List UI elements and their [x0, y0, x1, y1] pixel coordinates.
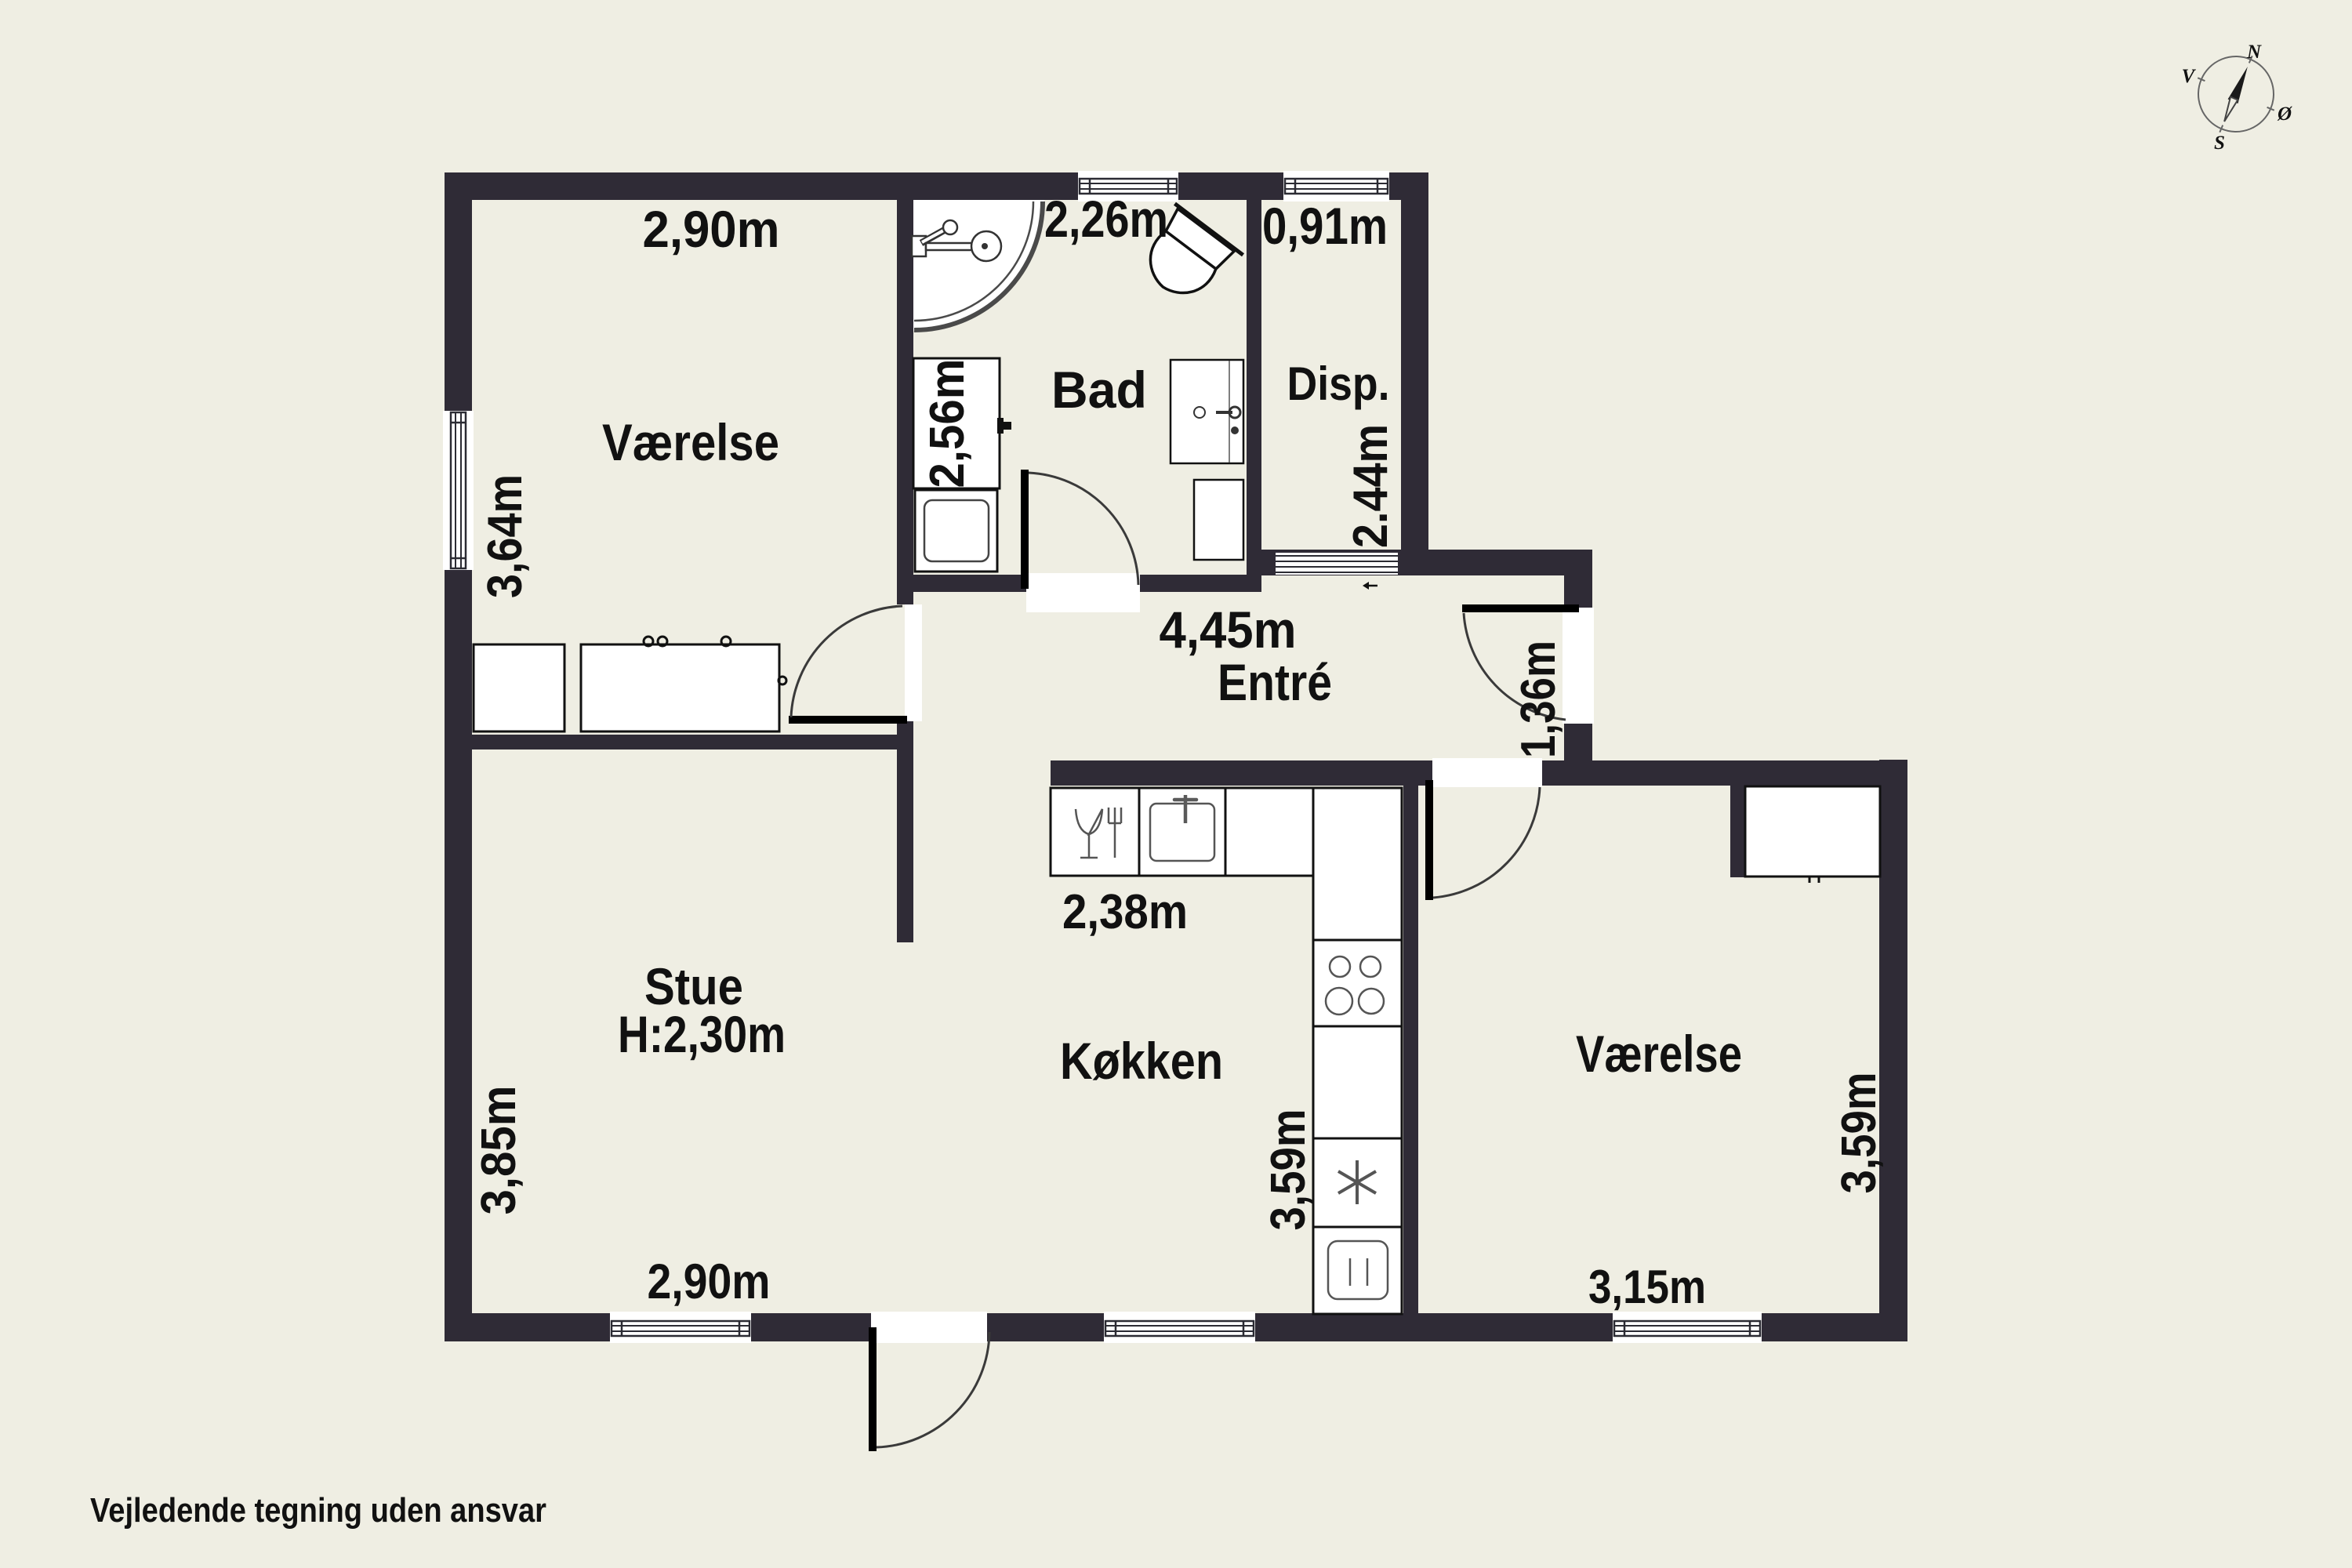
svg-text:H:2,30m: H:2,30m	[618, 1005, 786, 1063]
svg-text:0,91m: 0,91m	[1262, 197, 1388, 255]
svg-text:V: V	[2182, 66, 2197, 87]
svg-text:Ø: Ø	[2277, 103, 2292, 125]
svg-text:Vejledende tegning uden ansvar: Vejledende tegning uden ansvar	[90, 1491, 546, 1530]
svg-text:2,90m: 2,90m	[643, 200, 780, 258]
svg-text:Entré: Entré	[1218, 653, 1332, 711]
svg-text:2,26m: 2,26m	[1044, 190, 1168, 248]
svg-text:Værelse: Værelse	[602, 413, 779, 471]
svg-text:3,64m: 3,64m	[478, 474, 532, 598]
svg-text:S: S	[2214, 132, 2225, 154]
svg-text:Værelse: Værelse	[1576, 1025, 1742, 1083]
svg-text:3,59m: 3,59m	[1261, 1109, 1316, 1231]
svg-text:4,45m: 4,45m	[1160, 601, 1297, 659]
svg-text:1,36m: 1,36m	[1512, 641, 1566, 758]
svg-text:3,85m: 3,85m	[472, 1086, 526, 1215]
svg-text:2.44m: 2.44m	[1344, 424, 1398, 548]
svg-text:Disp.: Disp.	[1287, 358, 1390, 410]
svg-text:3,59m: 3,59m	[1832, 1073, 1886, 1194]
svg-text:3,15m: 3,15m	[1588, 1261, 1706, 1313]
svg-text:2,38m: 2,38m	[1062, 885, 1188, 939]
svg-text:N: N	[2246, 42, 2262, 63]
svg-text:2,90m: 2,90m	[648, 1254, 771, 1309]
svg-text:2,56m: 2,56m	[920, 359, 975, 488]
svg-text:Bad: Bad	[1051, 361, 1147, 419]
svg-text:Køkken: Køkken	[1060, 1032, 1223, 1090]
